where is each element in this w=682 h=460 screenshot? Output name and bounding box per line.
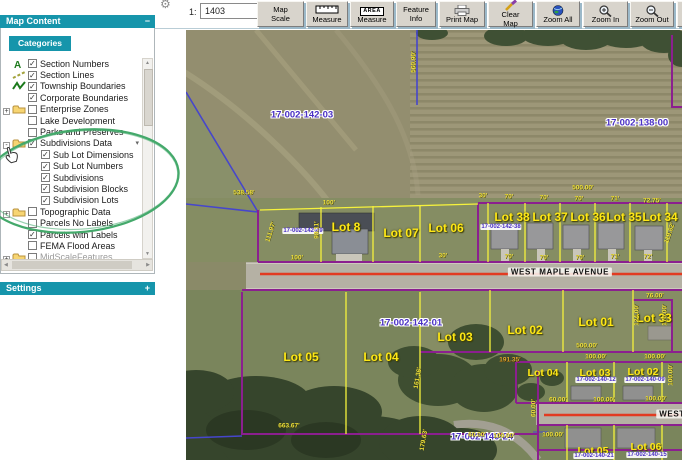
- clear-map-button[interactable]: Clear Map: [488, 1, 533, 27]
- layer-checkbox[interactable]: [28, 128, 37, 137]
- clear-map-label: Clear Map: [494, 11, 528, 28]
- sidebar-item-label: FEMA Flood Areas: [40, 241, 115, 251]
- dimension-label: 76.00': [646, 293, 664, 300]
- lots-icon: [25, 195, 41, 205]
- parcel-icon: [12, 218, 28, 228]
- map-viewport[interactable]: Lot 8Lot 07Lot 06Lot 38Lot 37Lot 36Lot 3…: [186, 30, 682, 460]
- dimension-label: 191.35': [499, 357, 520, 364]
- dimension-label: 60.00': [549, 397, 567, 404]
- layer-checkbox[interactable]: [41, 173, 50, 182]
- layer-checkbox[interactable]: [28, 116, 37, 125]
- folder-icon: [12, 138, 28, 148]
- layer-checkbox[interactable]: [28, 139, 37, 148]
- feature-info-button[interactable]: Feature Info: [396, 1, 436, 27]
- settings-header[interactable]: Settings +: [0, 282, 155, 295]
- parcel-id-label: 17-002-140-12: [575, 377, 616, 383]
- sidebar-item-subdivisions[interactable]: Subdivisions: [16, 172, 140, 183]
- layer-checkbox[interactable]: [41, 184, 50, 193]
- parcel-id-label: 17-002-142-01: [380, 318, 442, 329]
- dimension-label: 70': [505, 254, 514, 261]
- dimension-label: 100.00': [645, 396, 666, 403]
- parcel-id-label: 17-002-140-15: [626, 452, 667, 458]
- sidebar-item-label: Parcels with Labels: [40, 230, 118, 240]
- sidebar-item-section-lines[interactable]: Section Lines: [3, 69, 140, 80]
- lot-label: Lot 06: [428, 221, 463, 235]
- map-content-panel: Map Content − Categories ASection Number…: [0, 15, 155, 275]
- dimension-label: 72': [644, 254, 653, 261]
- sidebar-item-label: Subdivisions: [53, 173, 104, 183]
- parcel-id-label: 17-002-142-03: [271, 110, 333, 121]
- layer-checkbox[interactable]: [28, 219, 37, 228]
- lot-label: Lot 01: [578, 315, 613, 329]
- sidebar-item-label: Subdivisions Data: [40, 138, 112, 148]
- parcel-id-label: 17-002-140-09: [624, 377, 665, 383]
- layer-checkbox[interactable]: [41, 196, 50, 205]
- dimension-label: 111.97': [264, 221, 277, 243]
- scroll-up-icon[interactable]: ▲: [143, 60, 152, 66]
- dimension-label: 30': [479, 193, 488, 200]
- scale-ratio-label: 1:: [189, 7, 197, 17]
- scale-input[interactable]: [200, 3, 262, 19]
- panel-title: Map Content: [0, 16, 61, 26]
- sidebar-item-subdivision-lots[interactable]: Subdivision Lots: [16, 195, 140, 206]
- vertical-scrollbar[interactable]: ▲ ▼: [142, 58, 153, 259]
- dimension-label: 179.63': [419, 429, 430, 451]
- zoom-all-button[interactable]: Zoom All: [536, 1, 580, 27]
- lot-label: Lot 07: [383, 226, 418, 240]
- map-scale-button[interactable]: Map Scale: [257, 1, 304, 27]
- sidebar-item-label: Lake Development: [40, 116, 115, 126]
- folder-icon: [12, 207, 28, 217]
- expand-icon[interactable]: +: [3, 108, 10, 115]
- print-map-label: Print Map: [445, 16, 479, 25]
- expand-icon[interactable]: +: [3, 211, 10, 218]
- collapse-icon[interactable]: -: [3, 142, 10, 149]
- sidebar-item-label: Sub Lot Numbers: [53, 161, 123, 171]
- layer-checkbox[interactable]: [28, 59, 37, 68]
- horizontal-scrollbar[interactable]: ◀ ▶: [1, 259, 153, 271]
- dimension-label: 72.75': [643, 198, 661, 205]
- sidebar-item-label: Section Lines: [40, 70, 94, 80]
- lot-label: Lot 37: [532, 210, 567, 224]
- dimension-label: 98.11': [314, 221, 321, 238]
- street-label: WEST MAPLE AVENUE: [508, 268, 612, 277]
- dimension-label: 71': [611, 196, 620, 203]
- map-label-layer: Lot 8Lot 07Lot 06Lot 38Lot 37Lot 36Lot 3…: [186, 30, 682, 460]
- layer-checkbox[interactable]: [28, 230, 37, 239]
- layer-checkbox[interactable]: [28, 93, 37, 102]
- sidebar-item-label: Parks and Preserves: [40, 127, 124, 137]
- dimension-label: 30': [439, 253, 448, 260]
- sidebar-item-label: Township Boundaries: [40, 81, 126, 91]
- layer-checkbox[interactable]: [28, 71, 37, 80]
- lot-label: Lot 02: [507, 323, 542, 337]
- measure-distance-button[interactable]: Measure: [306, 1, 348, 27]
- street-label: WEST: [656, 410, 682, 419]
- zoom-in-button[interactable]: Zoom In: [583, 1, 628, 27]
- layer-checkbox[interactable]: [41, 162, 50, 171]
- feature-info-label: Feature Info: [399, 6, 433, 23]
- dimension-label: 60.00': [531, 399, 538, 417]
- measure-label: Measure: [310, 16, 344, 25]
- dimension-label: 500.00': [572, 185, 593, 192]
- scroll-left-icon[interactable]: ◀: [4, 261, 8, 270]
- dimension-label: 71': [611, 254, 620, 261]
- dimension-label: 100.00': [493, 433, 514, 440]
- svg-text:A: A: [14, 60, 21, 69]
- settings-title: Settings: [0, 283, 42, 293]
- dimension-label: 500.00': [576, 343, 597, 350]
- layer-checkbox[interactable]: [28, 105, 37, 114]
- sidebar-item-subdivision-blocks[interactable]: Subdivision Blocks: [16, 183, 140, 194]
- sidebar-item-label: Subdivision Blocks: [53, 184, 128, 194]
- parcel-id-label: 17-002-140-21: [573, 453, 614, 459]
- lot-label: Lot 05: [283, 350, 318, 364]
- dimension-label: 663.67': [278, 423, 299, 430]
- scroll-down-icon[interactable]: ▼: [143, 251, 152, 257]
- map-scale-label: Map Scale: [264, 6, 298, 23]
- dimension-label: 100.00': [668, 364, 675, 385]
- sidebar-item-subdivisions-data[interactable]: -Subdivisions Data▾: [3, 138, 140, 149]
- zoom-in-label: Zoom In: [589, 16, 623, 25]
- dimension-label: 100': [291, 255, 303, 262]
- lot-label: Lot 03: [437, 330, 472, 344]
- parcel-id-label: 17-002-138-00: [606, 118, 668, 129]
- sidebar-item-parcels-no-labels[interactable]: Parcels No Labels: [3, 217, 140, 228]
- dimension-label: 560.90': [411, 51, 418, 72]
- corporate-icon: [12, 93, 28, 103]
- sidebar-item-label: Corporate Boundaries: [40, 93, 128, 103]
- dimension-label: 119.82': [663, 222, 676, 244]
- dimension-label: 100.00': [585, 354, 606, 361]
- dimension-label: 70': [540, 195, 549, 202]
- sidebar-item-topographic-data[interactable]: +Topographic Data: [3, 206, 140, 217]
- dimension-label: 60.00': [468, 432, 486, 439]
- none-icon: [25, 161, 41, 171]
- sidebar-item-label: Subdivision Lots: [53, 195, 119, 205]
- sidebar-item-label: Enterprise Zones: [40, 104, 109, 114]
- fema-icon: [12, 241, 28, 251]
- sidebar-item-label: Parcels No Labels: [40, 218, 113, 228]
- lot-label: Lot 04: [528, 367, 559, 379]
- zoom-out-button[interactable]: Zoom Out: [630, 1, 674, 27]
- chevron-down-icon[interactable]: ▾: [135, 139, 140, 147]
- sidebar-item-label: Section Numbers: [40, 59, 109, 69]
- dimension-label: 100.00': [542, 432, 563, 439]
- lot-label: Lot 04: [363, 350, 398, 364]
- sidebar-item-label: Sub Lot Dimensions: [53, 150, 134, 160]
- blocks-icon: [25, 184, 41, 194]
- lot-label: Lot 35: [606, 210, 641, 224]
- subdivisions-icon: [25, 173, 41, 183]
- collapse-icon[interactable]: −: [145, 15, 150, 28]
- lot-label: Lot 36: [570, 210, 605, 224]
- sidebar-item-sub-lot-numbers[interactable]: Sub Lot Numbers: [16, 161, 140, 172]
- dimension-label: 100': [323, 200, 335, 207]
- sidebar-item-corporate-boundaries[interactable]: Corporate Boundaries: [3, 92, 140, 103]
- parcel-icon: [12, 230, 28, 240]
- section-lines-icon: [12, 70, 28, 80]
- scroll-thumb[interactable]: [144, 69, 153, 126]
- partial-button[interactable]: [677, 1, 682, 27]
- sidebar-item-parcels-with-labels[interactable]: Parcels with Labels: [3, 229, 140, 240]
- print-map-button[interactable]: Print Map: [439, 1, 485, 27]
- section-numbers-icon: A: [12, 59, 28, 69]
- layer-checkbox[interactable]: [28, 207, 37, 216]
- dimension-label: 124.00': [634, 304, 641, 325]
- sidebar-item-section-numbers[interactable]: ASection Numbers: [3, 58, 140, 69]
- none-icon: [12, 127, 28, 137]
- dimension-label: 170.00': [662, 304, 669, 325]
- scroll-thumb-horizontal[interactable]: [12, 261, 132, 269]
- sidebar-item-fema-flood-areas[interactable]: FEMA Flood Areas: [3, 240, 140, 251]
- lake-icon: [12, 116, 28, 126]
- measure-area-label: Measure: [355, 16, 389, 25]
- dimension-label: 100.00': [644, 354, 665, 361]
- sidebar-item-parks-and-preserves[interactable]: Parks and Preserves: [3, 126, 140, 137]
- dimension-label: 161.36': [413, 367, 424, 389]
- lot-label: Lot 8: [332, 220, 361, 234]
- township-icon: [12, 81, 28, 91]
- gis-application: ⚙ 1: Map Scale Measure AREA Measure Feat…: [0, 0, 682, 460]
- expand-icon[interactable]: +: [145, 282, 150, 295]
- layer-checkbox[interactable]: [41, 150, 50, 159]
- map-content-header[interactable]: Map Content −: [0, 15, 155, 28]
- dimension-label: 70': [576, 255, 585, 262]
- zoom-out-label: Zoom Out: [635, 16, 669, 25]
- dimension-label: 70': [540, 255, 549, 262]
- dimension-label: 70': [505, 194, 514, 201]
- dimension-label: 70': [575, 196, 584, 203]
- sidebar-item-enterprise-zones[interactable]: +Enterprise Zones: [3, 104, 140, 115]
- lot-label: Lot 38: [494, 210, 529, 224]
- dimension-label: 100.00': [593, 397, 614, 404]
- dimension-label: 538.58': [233, 190, 254, 197]
- sidebar-item-lake-development[interactable]: Lake Development: [3, 115, 140, 126]
- tab-categories[interactable]: Categories: [9, 36, 71, 51]
- measure-area-button[interactable]: AREA Measure: [350, 1, 394, 27]
- layer-checkbox[interactable]: [28, 82, 37, 91]
- folder-icon: [12, 104, 28, 114]
- gear-icon[interactable]: ⚙: [160, 0, 171, 11]
- none-icon: [25, 150, 41, 160]
- sidebar-item-township-boundaries[interactable]: Township Boundaries: [3, 81, 140, 92]
- sidebar-item-label: Topographic Data: [40, 207, 111, 217]
- scroll-right-icon[interactable]: ▶: [146, 261, 150, 270]
- layer-tree: ASection NumbersSection LinesTownship Bo…: [3, 58, 140, 261]
- zoom-all-label: Zoom All: [541, 16, 575, 25]
- layer-checkbox[interactable]: [28, 241, 37, 250]
- parcel-id-label: 17-002-142-38: [480, 224, 521, 230]
- sidebar-item-sub-lot-dimensions[interactable]: Sub Lot Dimensions: [16, 149, 140, 160]
